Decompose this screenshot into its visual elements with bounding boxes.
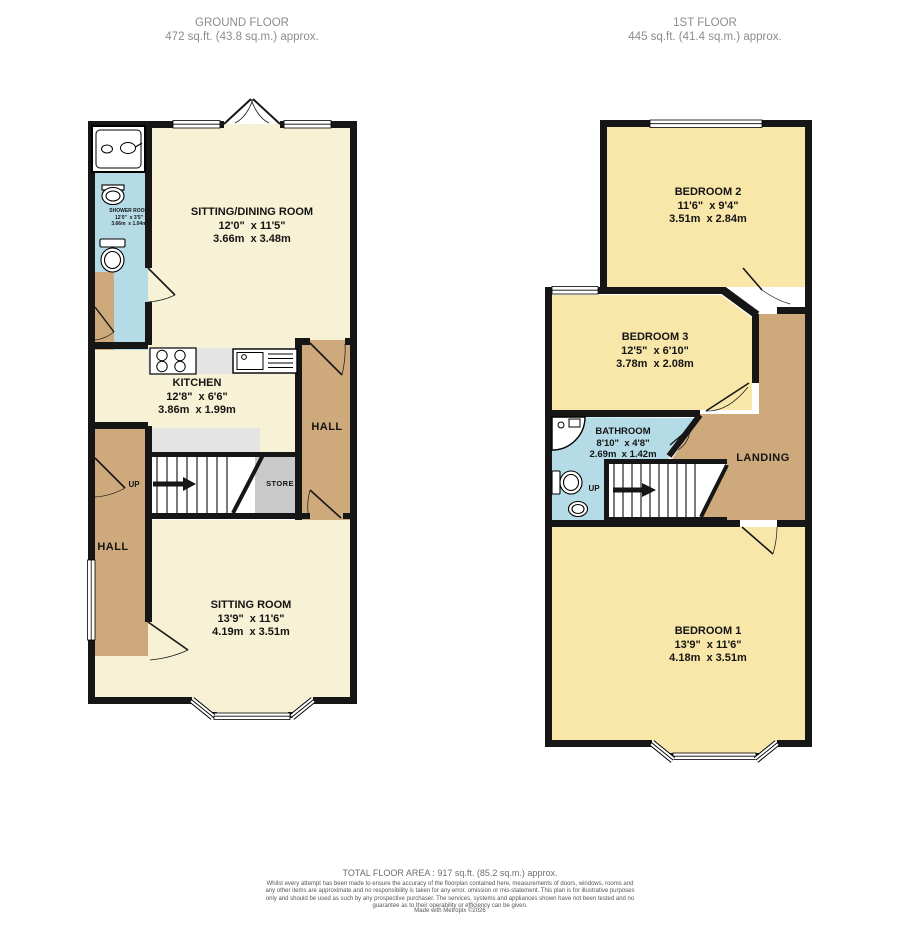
toilet-icon-first: [552, 471, 582, 494]
french-doors: [224, 99, 280, 124]
kitchen-label: KITCHEN 12'8" x 6'6" 3.86m x 1.99m: [117, 377, 277, 418]
hob-icon: [150, 348, 196, 374]
up-label-ground: UP: [120, 480, 148, 489]
floorplan-page: { "ground_floor": { "header": {"title": …: [0, 0, 900, 927]
shower-tray-icon: [92, 126, 145, 172]
ground-floor-title: GROUND FLOOR: [92, 16, 392, 30]
bathroom-label: BATHROOM 8'10" x 4'8" 2.69m x 1.42m: [553, 426, 693, 461]
total-floor-area: TOTAL FLOOR AREA : 917 sq.ft. (85.2 sq.m…: [0, 868, 900, 878]
sink-icon: [233, 349, 297, 373]
first-floor-title: 1ST FLOOR: [555, 16, 855, 30]
bedroom3-label: BEDROOM 3 12'5" x 6'10" 3.78m x 2.08m: [555, 331, 755, 372]
hall-right-label: HALL: [299, 421, 355, 433]
toilet-icon-ground: [100, 239, 125, 272]
ground-floor-header: GROUND FLOOR 472 sq.ft. (43.8 sq.m.) app…: [92, 16, 392, 44]
sitting-dining-room-label: SITTING/DINING ROOM 12'0" x 11'5" 3.66m …: [152, 206, 352, 247]
sitting-room-label: SITTING ROOM 13'9" x 11'6" 4.19m x 3.51m: [151, 599, 351, 640]
hall-left-label: HALL: [86, 541, 140, 553]
disclaimer-text: Whilst every attempt has been made to en…: [264, 881, 636, 910]
first-floor-area: 445 sq.ft. (41.4 sq.m.) approx.: [555, 30, 855, 44]
ground-floor-area: 472 sq.ft. (43.8 sq.m.) approx.: [92, 30, 392, 44]
basin-icon-ground: [102, 185, 124, 205]
first-floor-header: 1ST FLOOR 445 sq.ft. (41.4 sq.m.) approx…: [555, 16, 855, 44]
credit-text: Made with Metropix ©2026: [0, 908, 900, 914]
bedroom2-label: BEDROOM 2 11'6" x 9'4" 3.51m x 2.84m: [608, 186, 808, 227]
basin-icon-first: [569, 502, 588, 517]
store-label: STORE: [258, 479, 302, 488]
up-label-first: UP: [581, 484, 607, 493]
landing-label: LANDING: [728, 452, 798, 464]
bedroom1-label: BEDROOM 1 13'9" x 11'6" 4.18m x 3.51m: [608, 625, 808, 666]
